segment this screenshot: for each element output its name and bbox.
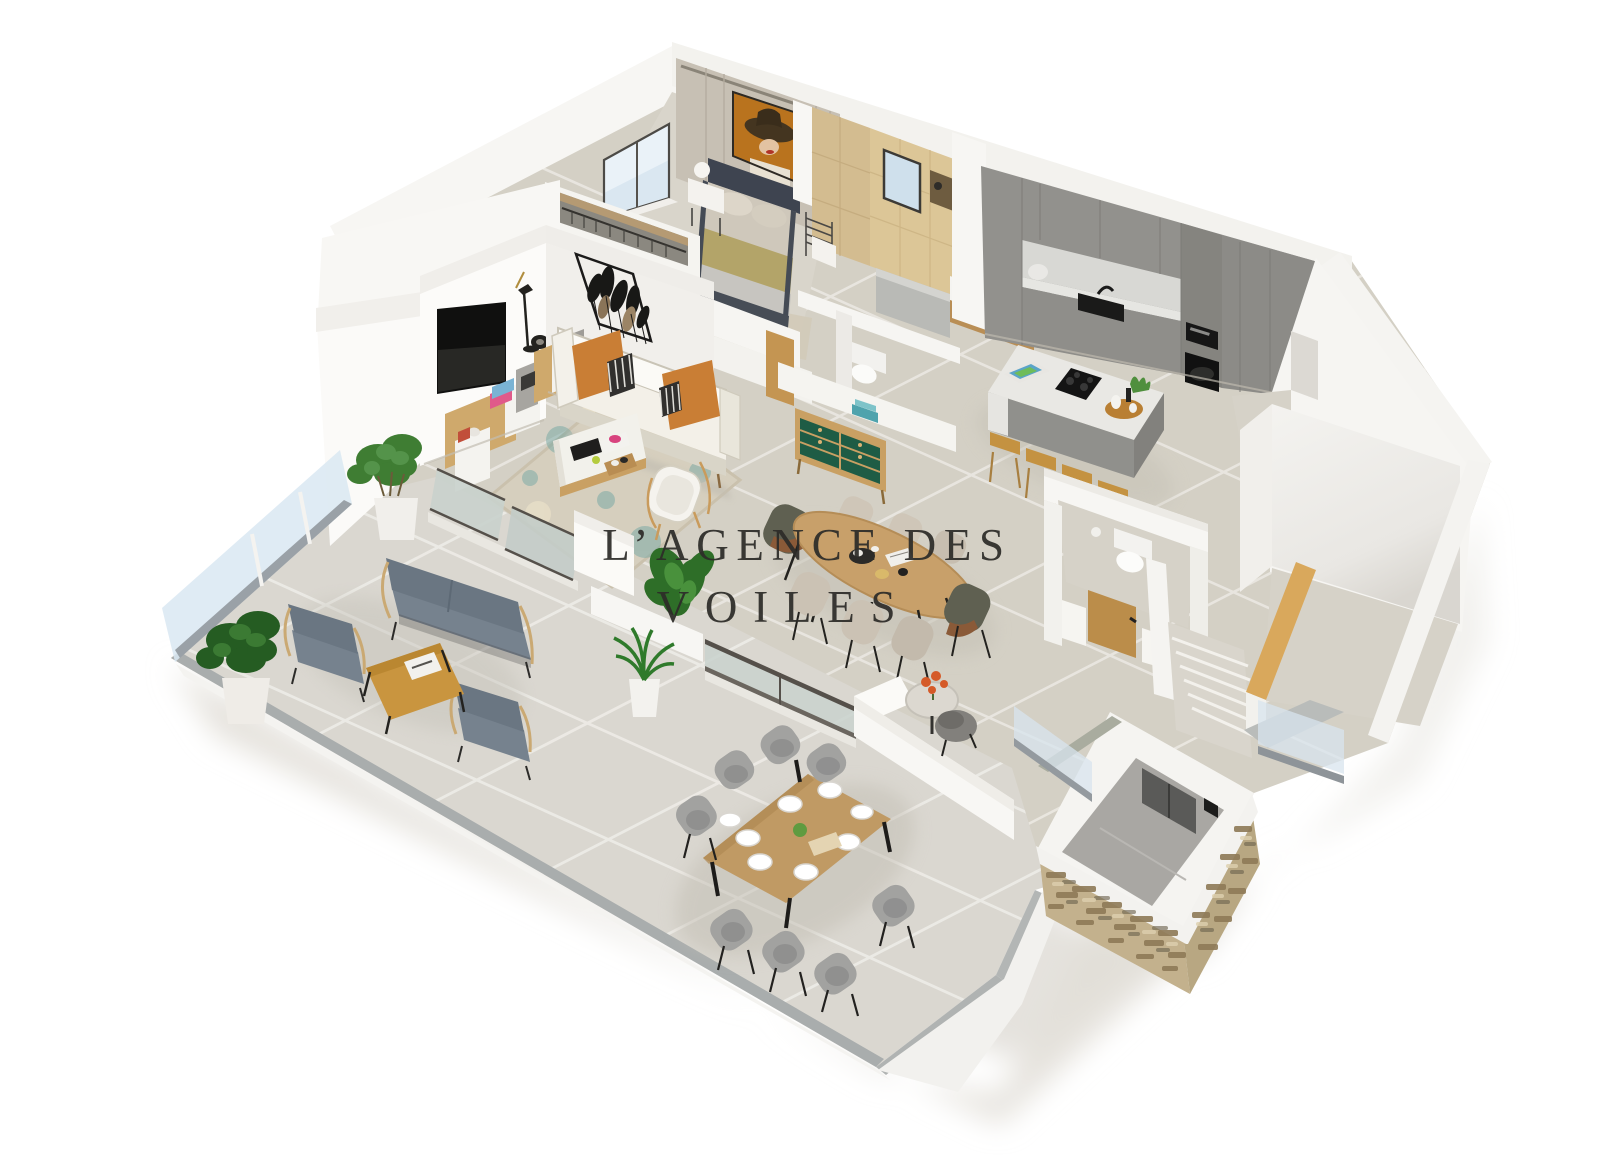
svg-text:L’AGENCE DES: L’AGENCE DES — [602, 520, 1012, 570]
svg-text:VOILES: VOILES — [657, 582, 912, 632]
